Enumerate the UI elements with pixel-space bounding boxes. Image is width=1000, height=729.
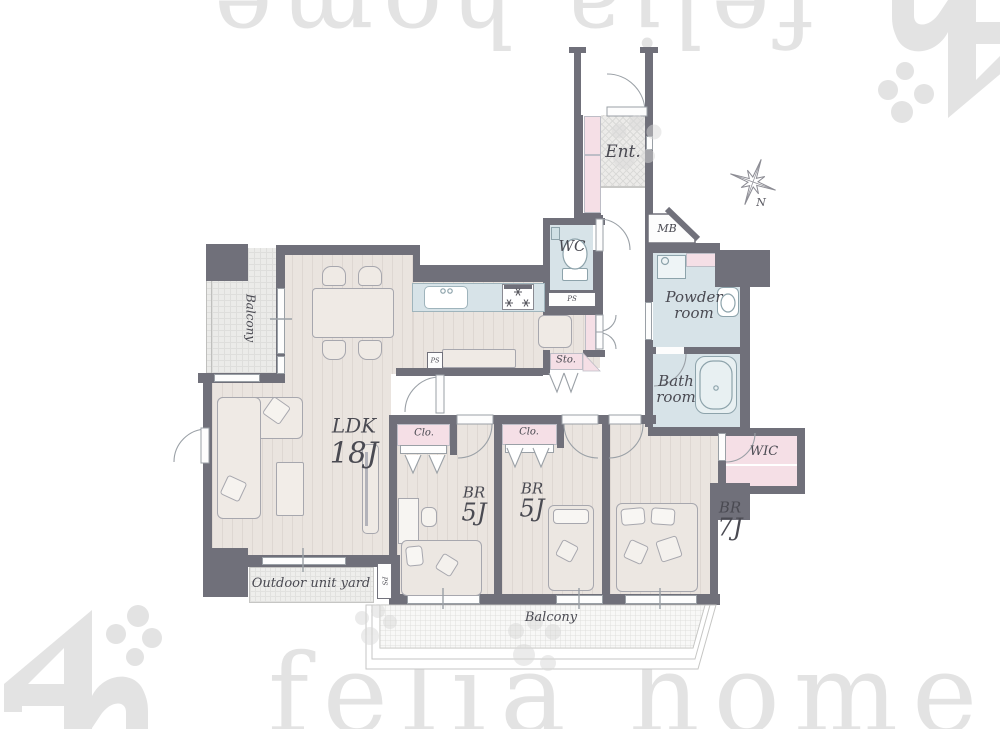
bedroom-a-size: 5J [462, 501, 487, 527]
floorplan-canvas: felia home felia home [0, 0, 1000, 729]
room-label-closet-a: Clo. [414, 429, 434, 440]
room-label-ldk: LDK 18J [330, 416, 379, 469]
room-label-bath: Bath room [656, 373, 695, 405]
room-label-entrance: Ent. [605, 143, 641, 161]
room-label-outdoor-unit-yard: Outdoor unit yard [252, 577, 370, 591]
room-label-balcony-left: Balcony [244, 294, 257, 342]
bedroom-c-size: 7J [718, 516, 743, 542]
powder-line2: room [665, 305, 722, 321]
compass-north-label: N [756, 197, 766, 209]
room-label-bedroom-c: BR 7J [718, 498, 743, 541]
room-label-ps-kitchen: PS [431, 357, 440, 364]
bath-line2: room [656, 389, 695, 405]
room-label-ps-wc: PS [567, 296, 577, 304]
room-label-powder: Powder room [665, 289, 722, 321]
room-label-balcony-bottom: Balcony [525, 611, 577, 625]
room-label-ps-yard: PS [380, 577, 387, 586]
room-label-wc: WC [559, 238, 586, 254]
room-label-meter-box: MB [657, 223, 676, 235]
room-label-closet-b: Clo. [519, 428, 539, 439]
paw-icon [0, 0, 1000, 729]
bedroom-b-size: 5J [520, 497, 545, 523]
room-label-wic: WIC [750, 445, 778, 459]
ldk-name: LDK [332, 414, 376, 438]
room-label-storage: Sto. [556, 356, 576, 367]
room-label-bedroom-b: BR 5J [520, 479, 545, 522]
ldk-size: 18J [330, 437, 379, 468]
room-label-bedroom-a: BR 5J [462, 483, 487, 526]
